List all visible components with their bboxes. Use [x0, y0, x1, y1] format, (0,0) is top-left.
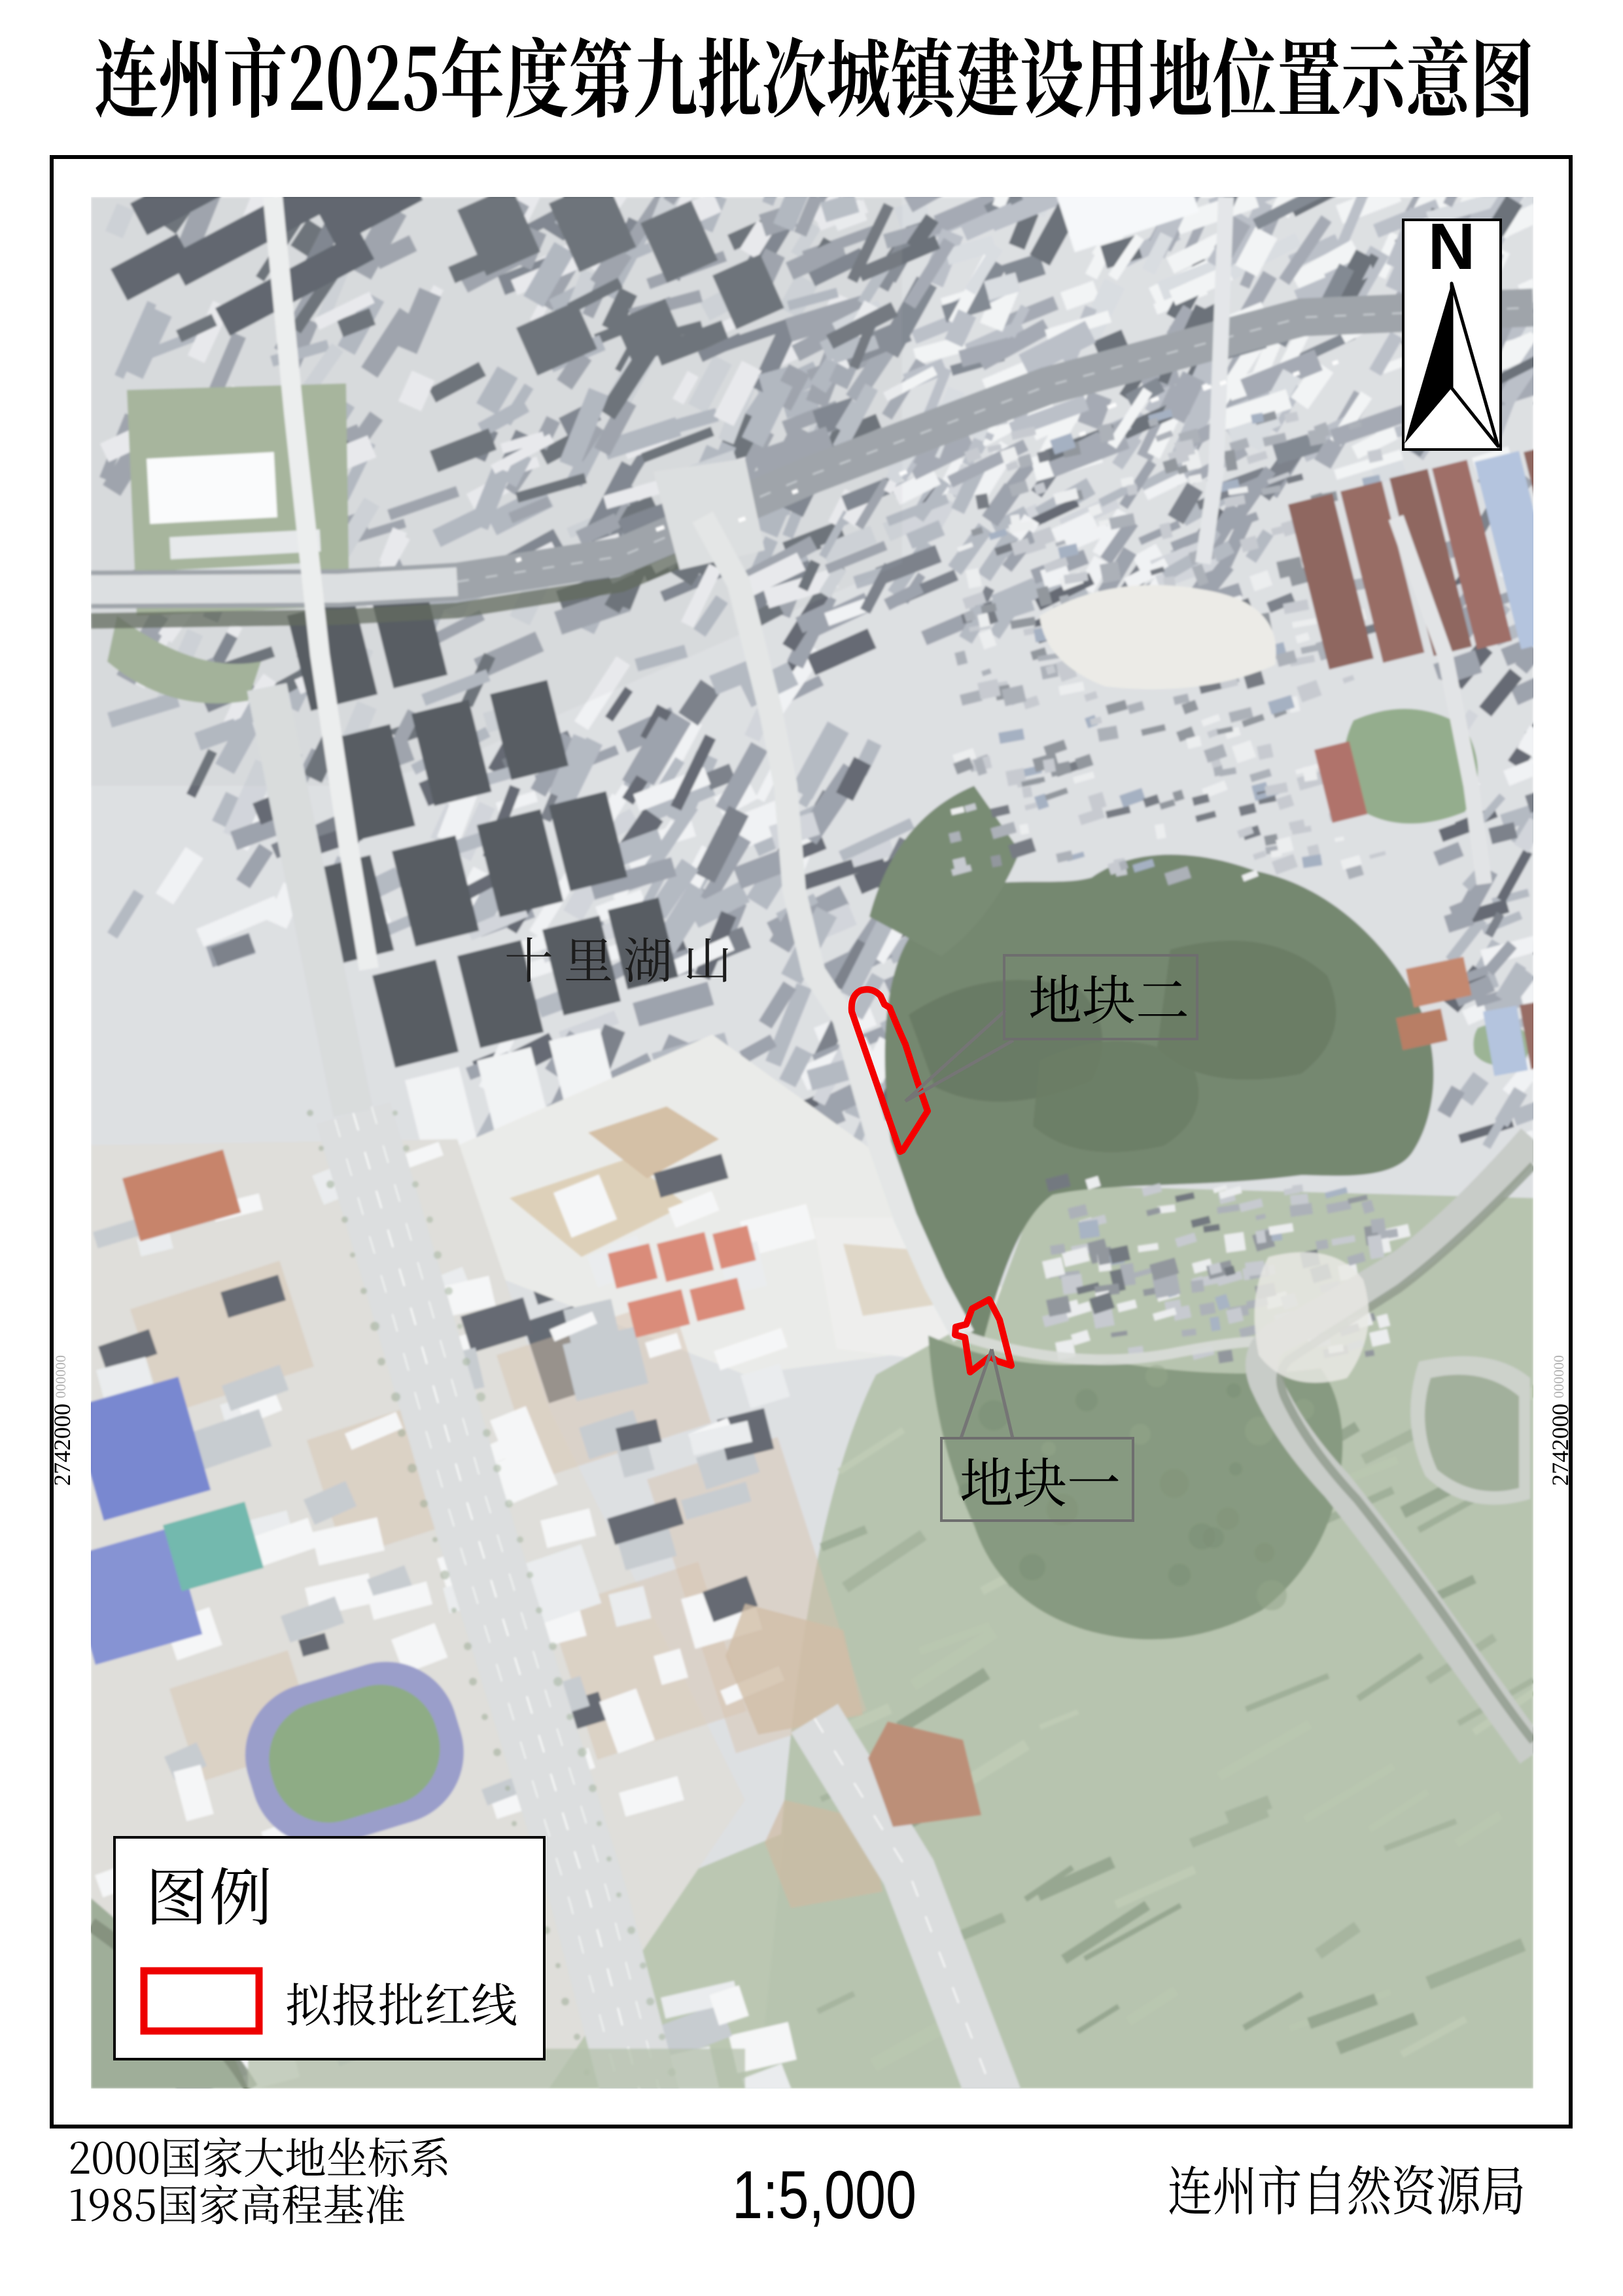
svg-text:2742000: 2742000 [49, 1404, 75, 1486]
svg-text:000000: 000000 [52, 1355, 69, 1398]
svg-text:1:5,000: 1:5,000 [732, 2157, 916, 2233]
svg-text:000000: 000000 [1550, 1355, 1567, 1398]
svg-text:2742000: 2742000 [1547, 1404, 1573, 1486]
svg-text:N: N [1428, 210, 1475, 283]
